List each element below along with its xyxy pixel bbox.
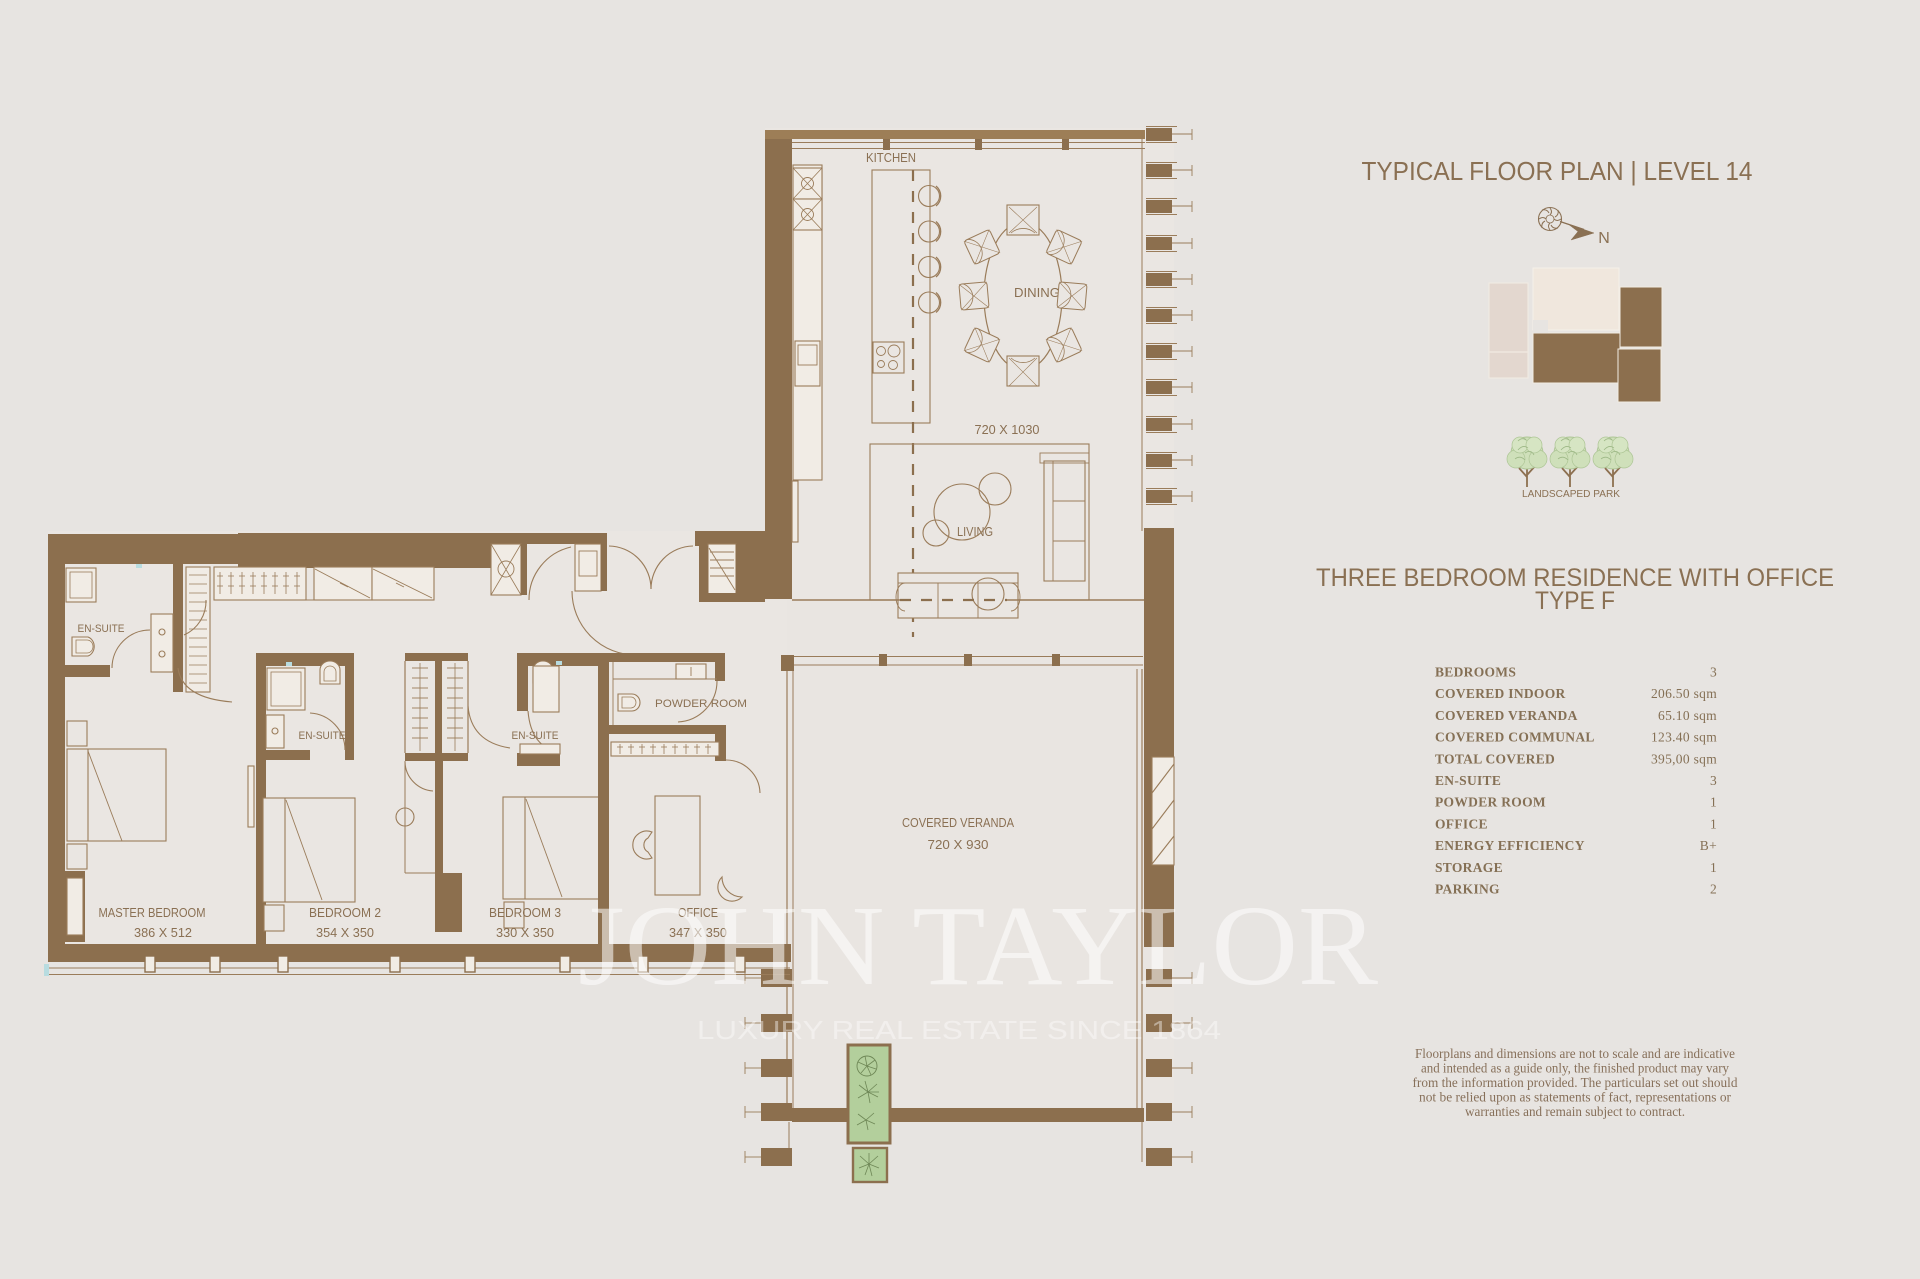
- svg-text:206.50 sqm: 206.50 sqm: [1651, 686, 1717, 701]
- svg-text:Floorplans and dimensions are: Floorplans and dimensions are not to sca…: [1415, 1046, 1735, 1061]
- svg-text:720 X 1030: 720 X 1030: [975, 422, 1040, 437]
- svg-text:KITCHEN: KITCHEN: [866, 150, 916, 165]
- svg-text:COVERED VERANDA: COVERED VERANDA: [902, 815, 1014, 830]
- svg-text:EN-SUITE: EN-SUITE: [299, 730, 346, 742]
- svg-text:TOTAL COVERED: TOTAL COVERED: [1435, 751, 1555, 766]
- svg-text:1: 1: [1710, 816, 1717, 831]
- svg-text:386 X 512: 386 X 512: [134, 925, 192, 940]
- svg-text:COVERED COMMUNAL: COVERED COMMUNAL: [1435, 730, 1595, 745]
- svg-text:LUXURY REAL ESTATE SINCE 1864: LUXURY REAL ESTATE SINCE 1864: [697, 1015, 1221, 1045]
- svg-text:OFFICE: OFFICE: [1435, 816, 1488, 831]
- svg-text:COVERED INDOOR: COVERED INDOOR: [1435, 686, 1566, 701]
- svg-text:STORAGE: STORAGE: [1435, 860, 1503, 875]
- svg-text:from the information provided.: from the information provided. The parti…: [1413, 1075, 1738, 1090]
- svg-text:354 X 350: 354 X 350: [316, 925, 374, 940]
- svg-text:3: 3: [1710, 665, 1717, 680]
- svg-text:BEDROOM 3: BEDROOM 3: [489, 905, 561, 920]
- svg-text:DINING: DINING: [1014, 285, 1060, 300]
- svg-text:POWDER ROOM: POWDER ROOM: [1435, 795, 1546, 810]
- svg-text:JOHN TAYLOR: JOHN TAYLOR: [578, 882, 1378, 1009]
- svg-text:N: N: [1598, 230, 1610, 247]
- svg-text:and intended as a guide only,: and intended as a guide only, the finish…: [1421, 1061, 1729, 1076]
- svg-text:2: 2: [1710, 882, 1717, 897]
- svg-text:720 X 930: 720 X 930: [928, 837, 989, 852]
- svg-text:MASTER BEDROOM: MASTER BEDROOM: [99, 905, 206, 920]
- svg-text:TYPICAL FLOOR PLAN | LEVEL 14: TYPICAL FLOOR PLAN | LEVEL 14: [1362, 156, 1753, 186]
- svg-text:3: 3: [1710, 773, 1717, 788]
- svg-text:1: 1: [1710, 795, 1717, 810]
- svg-text:1: 1: [1710, 860, 1717, 875]
- svg-text:EN-SUITE: EN-SUITE: [78, 623, 125, 635]
- svg-text:BEDROOM 2: BEDROOM 2: [309, 905, 381, 920]
- svg-text:B+: B+: [1700, 838, 1717, 853]
- svg-text:395,00 sqm: 395,00 sqm: [1651, 751, 1717, 766]
- svg-text:PARKING: PARKING: [1435, 882, 1500, 897]
- svg-text:COVERED VERANDA: COVERED VERANDA: [1435, 708, 1578, 723]
- svg-text:not be relied upon as statemen: not be relied upon as statements of fact…: [1419, 1090, 1732, 1105]
- svg-text:POWDER ROOM: POWDER ROOM: [655, 698, 747, 710]
- svg-text:BEDROOMS: BEDROOMS: [1435, 665, 1516, 680]
- svg-text:65.10 sqm: 65.10 sqm: [1658, 708, 1717, 723]
- svg-text:ENERGY EFFICIENCY: ENERGY EFFICIENCY: [1435, 838, 1585, 853]
- svg-text:LANDSCAPED PARK: LANDSCAPED PARK: [1522, 488, 1620, 500]
- svg-text:EN-SUITE: EN-SUITE: [512, 730, 559, 742]
- svg-text:EN-SUITE: EN-SUITE: [1435, 773, 1501, 788]
- svg-text:warranties and remain subject: warranties and remain subject to contrac…: [1465, 1104, 1685, 1119]
- svg-text:TYPE F: TYPE F: [1535, 587, 1615, 615]
- svg-text:123.40 sqm: 123.40 sqm: [1651, 730, 1717, 745]
- svg-text:330 X 350: 330 X 350: [496, 925, 554, 940]
